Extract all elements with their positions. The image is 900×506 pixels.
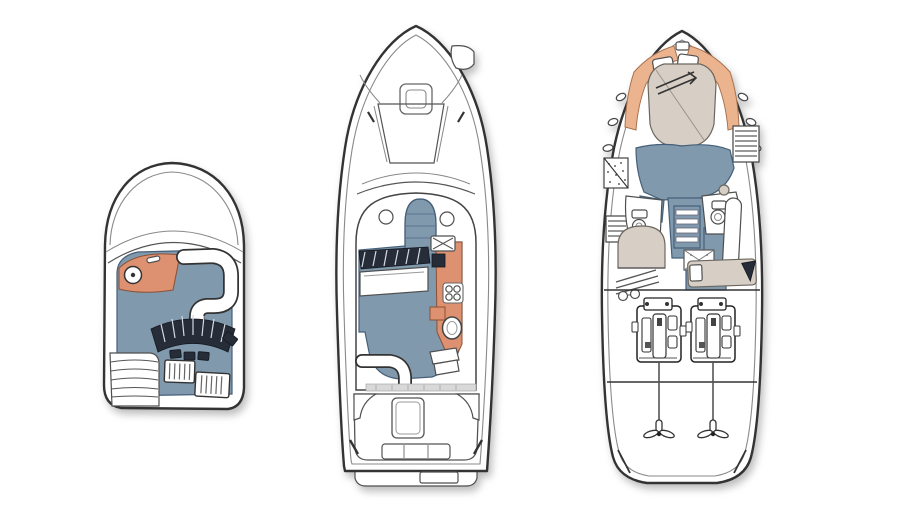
dinette-oval — [443, 317, 462, 339]
steering-wheel-icon — [125, 267, 142, 284]
sink — [432, 254, 445, 267]
cockpit — [350, 394, 482, 460]
mid-cabin-berth — [688, 259, 757, 287]
flybridge-plan — [104, 163, 244, 409]
main-deck-plan — [336, 26, 495, 486]
toilet-tank-port — [632, 210, 647, 218]
v-berth — [648, 64, 716, 146]
hanging-locker-starboard — [733, 126, 759, 162]
companionway-stairs — [674, 206, 700, 248]
port-engine — [632, 298, 686, 362]
deck-plans-svg — [0, 0, 900, 506]
side-table — [719, 185, 729, 195]
stove — [443, 283, 463, 303]
windlass — [676, 42, 689, 50]
platform-step — [420, 472, 458, 483]
counter-stub — [430, 307, 445, 320]
anchor-locker — [451, 46, 474, 70]
ladder-steps — [110, 353, 159, 406]
deck-plans-canvas — [0, 0, 900, 506]
porthole-port — [379, 210, 393, 224]
engine-hatch — [392, 398, 424, 438]
transom-seat — [382, 444, 450, 459]
hanging-locker-port — [604, 158, 628, 188]
foredeck-hatch — [400, 84, 432, 114]
deck-hatch-fore — [164, 360, 195, 383]
side-berth — [360, 267, 428, 296]
head-toilet-starboard — [711, 210, 725, 224]
starboard-engine — [686, 298, 740, 362]
lower-deck-plan — [602, 31, 762, 483]
deck-hatch-aft — [195, 372, 230, 398]
porthole-starboard — [440, 212, 454, 226]
yacht-deck-plans-diagram — [0, 0, 900, 506]
toilet-tank-starboard — [712, 201, 726, 209]
door-track — [366, 384, 476, 391]
